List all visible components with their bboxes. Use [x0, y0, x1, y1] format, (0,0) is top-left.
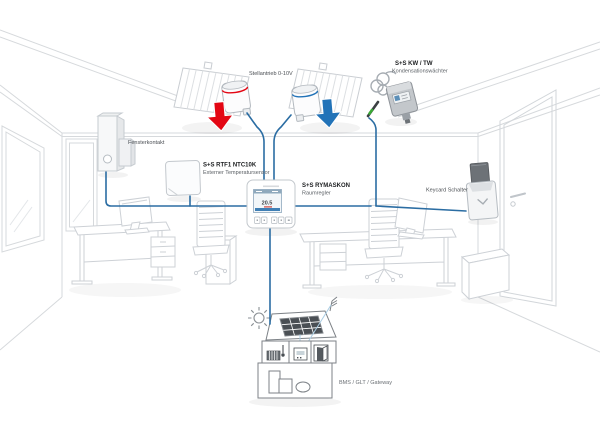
line-condensation-corner	[369, 118, 376, 206]
window-contact-label: Fensterkontakt	[128, 140, 165, 146]
antenna-icon	[330, 297, 337, 311]
sun-icon	[248, 307, 270, 329]
actuator-label: Stellantrieb 0-10V	[249, 71, 293, 77]
room-controller-device: 20.5	[247, 180, 295, 228]
controller-screen: 20.5	[254, 190, 282, 213]
window-back-wall	[66, 139, 97, 231]
line-controller-cooling	[274, 115, 291, 181]
condensation-desc-label: Kondensationswächter	[392, 69, 448, 75]
condensation-monitor-device	[368, 72, 421, 127]
bms-label: BMS / GLT / Gateway	[339, 380, 392, 386]
keycard-switch-device	[465, 162, 499, 220]
door-handle-icon	[511, 194, 525, 198]
cabinet-right	[462, 249, 509, 299]
controller-temperature: 20.5	[262, 201, 273, 207]
tank-icon	[296, 382, 310, 392]
system-diagram: 20.5	[0, 0, 600, 424]
controller-buttons	[255, 217, 293, 224]
drawer-unit	[320, 244, 346, 270]
sensor-name-label: S+S RTF1 NTC10K	[203, 163, 257, 169]
solar-panel	[280, 316, 323, 336]
pc-tower-side	[230, 236, 236, 284]
door-icon	[314, 345, 328, 361]
keycard-label: Keycard Schalter	[426, 188, 468, 194]
sensor-desc-label: Externer Temperatursensor	[203, 170, 270, 176]
controller-name-label: S+S RYMASKON	[302, 183, 350, 189]
monitor-right	[395, 198, 427, 239]
controller-desc-label: Raumregler	[302, 191, 331, 197]
thermostat-icon	[294, 348, 307, 360]
window-left-wall	[2, 126, 44, 252]
bms-house-illustration	[248, 297, 337, 398]
temperature-sensor-device	[165, 160, 200, 195]
condensation-name-label: S+S KW / TW	[395, 61, 433, 67]
